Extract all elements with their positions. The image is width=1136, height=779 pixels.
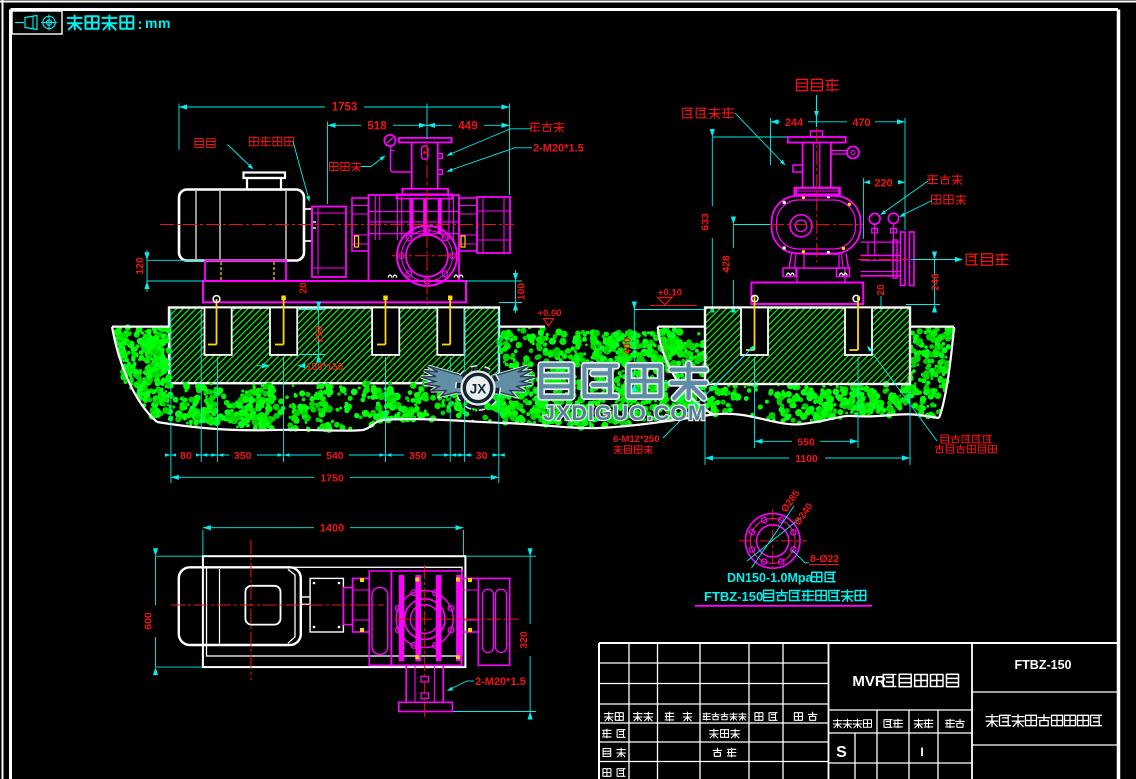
svg-text:JX: JX [470, 382, 487, 397]
svg-text:350: 350 [409, 450, 427, 462]
svg-text:244: 244 [785, 117, 804, 129]
svg-text:6-M12*250: 6-M12*250 [613, 434, 659, 445]
svg-text:540: 540 [326, 450, 344, 462]
svg-text:600: 600 [143, 612, 155, 630]
svg-text::: : [138, 16, 143, 33]
svg-text:FTBZ-150: FTBZ-150 [1015, 658, 1072, 672]
svg-text:150*150: 150*150 [306, 362, 344, 373]
svg-text:449: 449 [458, 121, 477, 133]
svg-text:100: 100 [516, 283, 528, 301]
svg-text:320: 320 [518, 631, 530, 649]
svg-text:250: 250 [314, 325, 326, 343]
svg-text:DN150-1.0Mpa: DN150-1.0Mpa [727, 571, 813, 585]
svg-text:400: 400 [622, 337, 634, 355]
svg-text:350: 350 [234, 450, 252, 462]
svg-text:120: 120 [134, 257, 146, 275]
svg-text:20: 20 [876, 284, 887, 296]
svg-text:+0.10: +0.10 [658, 288, 682, 299]
svg-text:30: 30 [476, 450, 488, 462]
svg-text:470: 470 [852, 117, 870, 129]
svg-text:1750: 1750 [320, 472, 344, 484]
svg-text:428: 428 [721, 255, 733, 273]
svg-text:1100: 1100 [795, 453, 818, 465]
svg-text:633: 633 [700, 213, 712, 231]
svg-text:220: 220 [874, 177, 892, 189]
svg-text:2-M20*1.5: 2-M20*1.5 [475, 676, 526, 688]
svg-text:1753: 1753 [332, 102, 358, 114]
svg-text:518: 518 [367, 121, 387, 133]
svg-text:mm: mm [145, 15, 171, 31]
svg-text:550: 550 [797, 436, 815, 448]
svg-text:20: 20 [299, 282, 310, 294]
svg-text:2-M20*1.5: 2-M20*1.5 [533, 143, 584, 155]
svg-text:1400: 1400 [320, 523, 344, 535]
svg-text:8-Ø22: 8-Ø22 [810, 553, 839, 565]
svg-text:80: 80 [180, 450, 192, 462]
svg-text:+0.00: +0.00 [537, 308, 561, 319]
svg-text:FTBZ-150: FTBZ-150 [704, 589, 763, 604]
svg-text:S: S [836, 744, 847, 761]
svg-text:246: 246 [930, 273, 942, 291]
svg-text:MVR: MVR [852, 673, 886, 690]
svg-text:I: I [920, 745, 923, 759]
svg-text:JXDIGUO.COM: JXDIGUO.COM [543, 401, 707, 425]
